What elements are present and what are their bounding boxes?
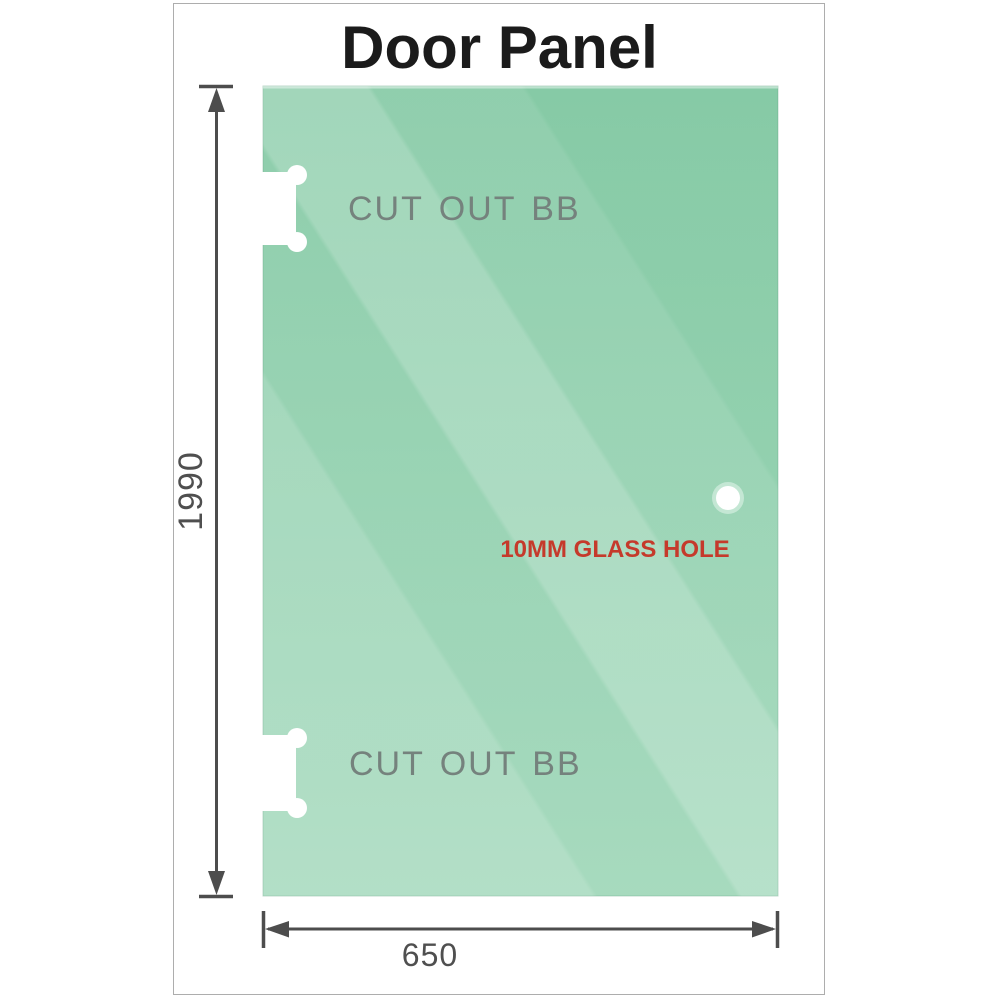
diagram-canvas: [0, 0, 1000, 1000]
width-dimension-value: 650: [370, 939, 490, 971]
height-dim-arrowhead-down: [208, 871, 225, 895]
glass-top-highlight: [263, 86, 778, 89]
hinge-cutout-top-lobe-lower: [287, 232, 307, 252]
cutout-bottom-label: CUT OUT BB: [349, 747, 582, 781]
page-title: Door Panel: [173, 18, 826, 78]
hinge-cutout-bottom-slot: [253, 735, 296, 811]
height-dimension-value: 1990: [174, 421, 208, 561]
width-dim-arrowhead-right: [752, 921, 776, 938]
hinge-cutout-top-lobe-upper: [287, 165, 307, 185]
hinge-cutout-bottom-lobe-lower: [287, 798, 307, 818]
glass-hole: [712, 482, 744, 514]
glass-hole-center: [716, 486, 740, 510]
hinge-cutout-bottom-lobe-upper: [287, 728, 307, 748]
height-dim-arrowhead-up: [208, 88, 225, 112]
cutout-top-label: CUT OUT BB: [348, 192, 581, 226]
hinge-cutout-top-slot: [253, 172, 296, 245]
door-panel-diagram: Door Panel CUT OUT BB CUT OUT BB 10MM GL…: [0, 0, 1000, 1000]
width-dimension-arrow: [264, 911, 778, 948]
glass-hole-label: 10MM GLASS HOLE: [440, 538, 790, 562]
width-dim-arrowhead-left: [265, 921, 289, 938]
